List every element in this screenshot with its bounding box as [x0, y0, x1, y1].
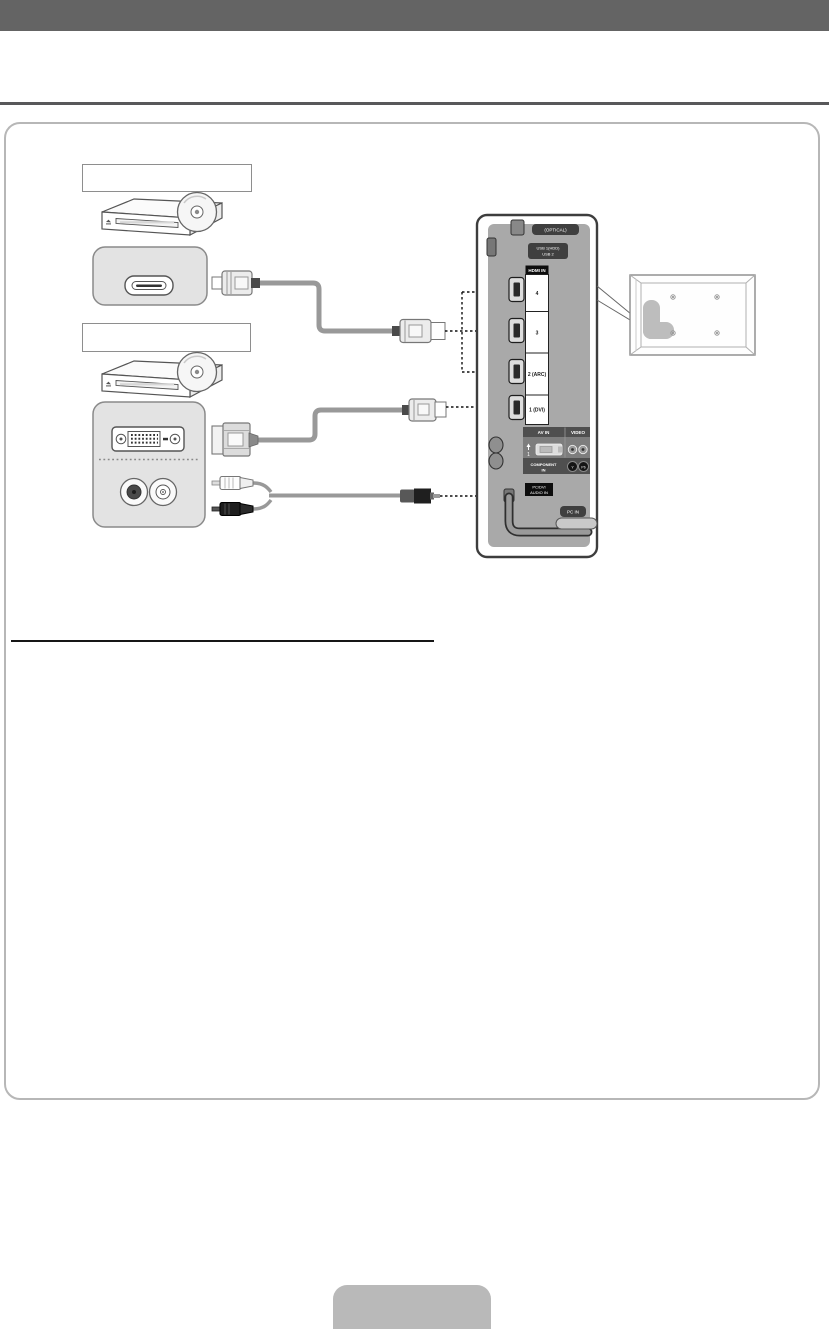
hdmi-in-header: HDMI IN	[528, 268, 545, 273]
tv-back-view	[597, 275, 755, 355]
pc-in-label: PC IN	[567, 510, 579, 515]
audio-jack-right-icon	[121, 479, 148, 506]
dvi-audio-port-box	[93, 402, 205, 527]
optical-port-icon	[487, 238, 496, 256]
dvi-socket-icon	[112, 427, 184, 451]
av-extension-plug-icon	[536, 444, 562, 455]
hdmi-device-section	[93, 193, 222, 306]
pc-dvi-audio-label-line2: AUDIO IN	[530, 490, 548, 495]
component-in-label-line2: IN	[542, 468, 546, 473]
dvi-plug-icon	[212, 423, 258, 456]
connection-diagram: (OPTICAL) USB 1(HDD) USB 2 HDMI IN 4 3 2…	[0, 0, 829, 1329]
audio-jack-left-icon	[150, 479, 177, 506]
rca-plug-black-icon	[212, 503, 253, 516]
component-in-label-line1: COMPONENT	[531, 462, 558, 467]
rca-plug-white-icon	[212, 477, 253, 490]
component-pb-jack-label: Pb	[581, 465, 585, 469]
hdmi-plug-icon	[392, 320, 445, 343]
hdmi-cable	[212, 271, 445, 343]
hdmi-dvi-cable	[212, 399, 446, 456]
page-number-tab	[333, 1285, 491, 1329]
pc-dvi-audio-label-line1: PC/DVI	[532, 485, 545, 490]
section-divider-line	[11, 640, 434, 642]
top-port-icon	[511, 220, 524, 235]
disc-icon	[178, 353, 217, 392]
hdmi-port-1-dvi-label: 1 (DVI)	[529, 408, 545, 414]
hdmi-port-2-arc-label: 2 (ARC)	[528, 372, 547, 378]
video-label: VIDEO	[571, 430, 586, 435]
usb-label-line1: USB 1(HDD)	[537, 246, 561, 251]
hdmi-port-box	[93, 247, 207, 305]
audio-cable	[212, 477, 440, 516]
av-port-number: 1	[527, 452, 530, 458]
hdmi-port-3-label: 3	[536, 331, 539, 337]
stereo-plug-icon	[400, 489, 440, 504]
disc-icon	[178, 193, 217, 232]
hdmi-plug-icon	[212, 271, 260, 295]
av-side-port-icon	[489, 453, 503, 469]
av-section: AV IN VIDEO 1 COMPONENT IN Y Pb	[523, 427, 590, 474]
dvi-device-section	[93, 353, 222, 528]
usb-label-line2: USB 2	[542, 252, 554, 257]
av-in-label: AV IN	[538, 430, 550, 435]
panel-location-highlight	[643, 322, 674, 339]
tv-side-panel: (OPTICAL) USB 1(HDD) USB 2 HDMI IN 4 3 2…	[477, 215, 597, 557]
av-side-port-icon	[489, 437, 503, 453]
hdmi-plug-icon	[402, 399, 446, 421]
optical-label: (OPTICAL)	[544, 228, 567, 233]
hdmi-port-4-label: 4	[536, 291, 539, 297]
